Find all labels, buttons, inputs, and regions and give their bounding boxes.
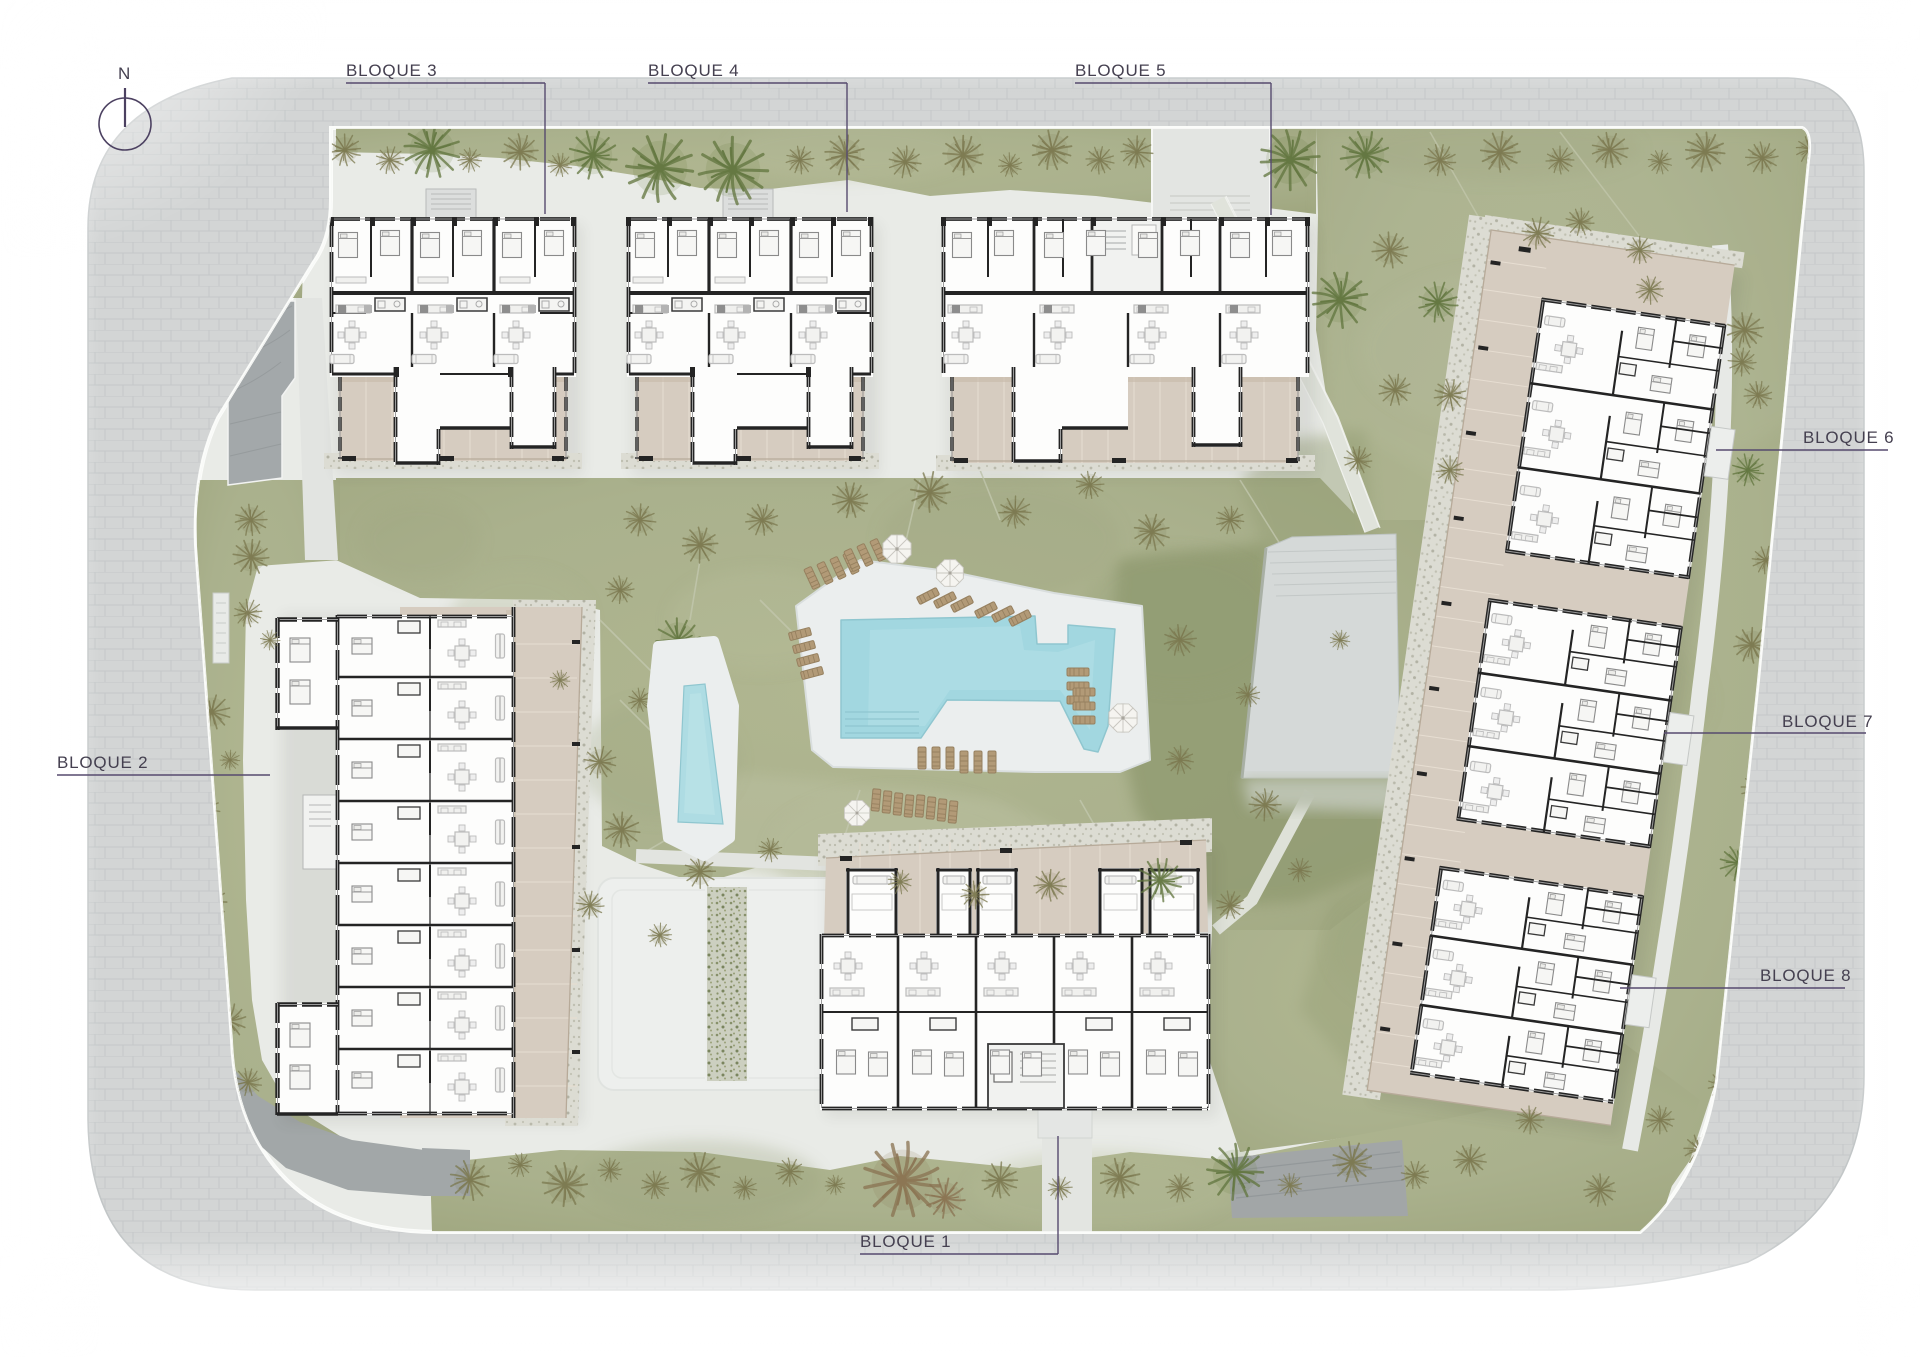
svg-text:BLOQUE 4: BLOQUE 4 [648,61,739,80]
svg-text:BLOQUE 7: BLOQUE 7 [1782,712,1873,731]
svg-text:BLOQUE 3: BLOQUE 3 [346,61,437,80]
svg-text:N: N [118,64,130,83]
svg-text:BLOQUE 8: BLOQUE 8 [1760,966,1851,985]
svg-text:BLOQUE 6: BLOQUE 6 [1803,428,1894,447]
svg-text:BLOQUE 2: BLOQUE 2 [57,753,148,772]
svg-text:BLOQUE 1: BLOQUE 1 [860,1232,951,1251]
svg-text:BLOQUE 5: BLOQUE 5 [1075,61,1166,80]
